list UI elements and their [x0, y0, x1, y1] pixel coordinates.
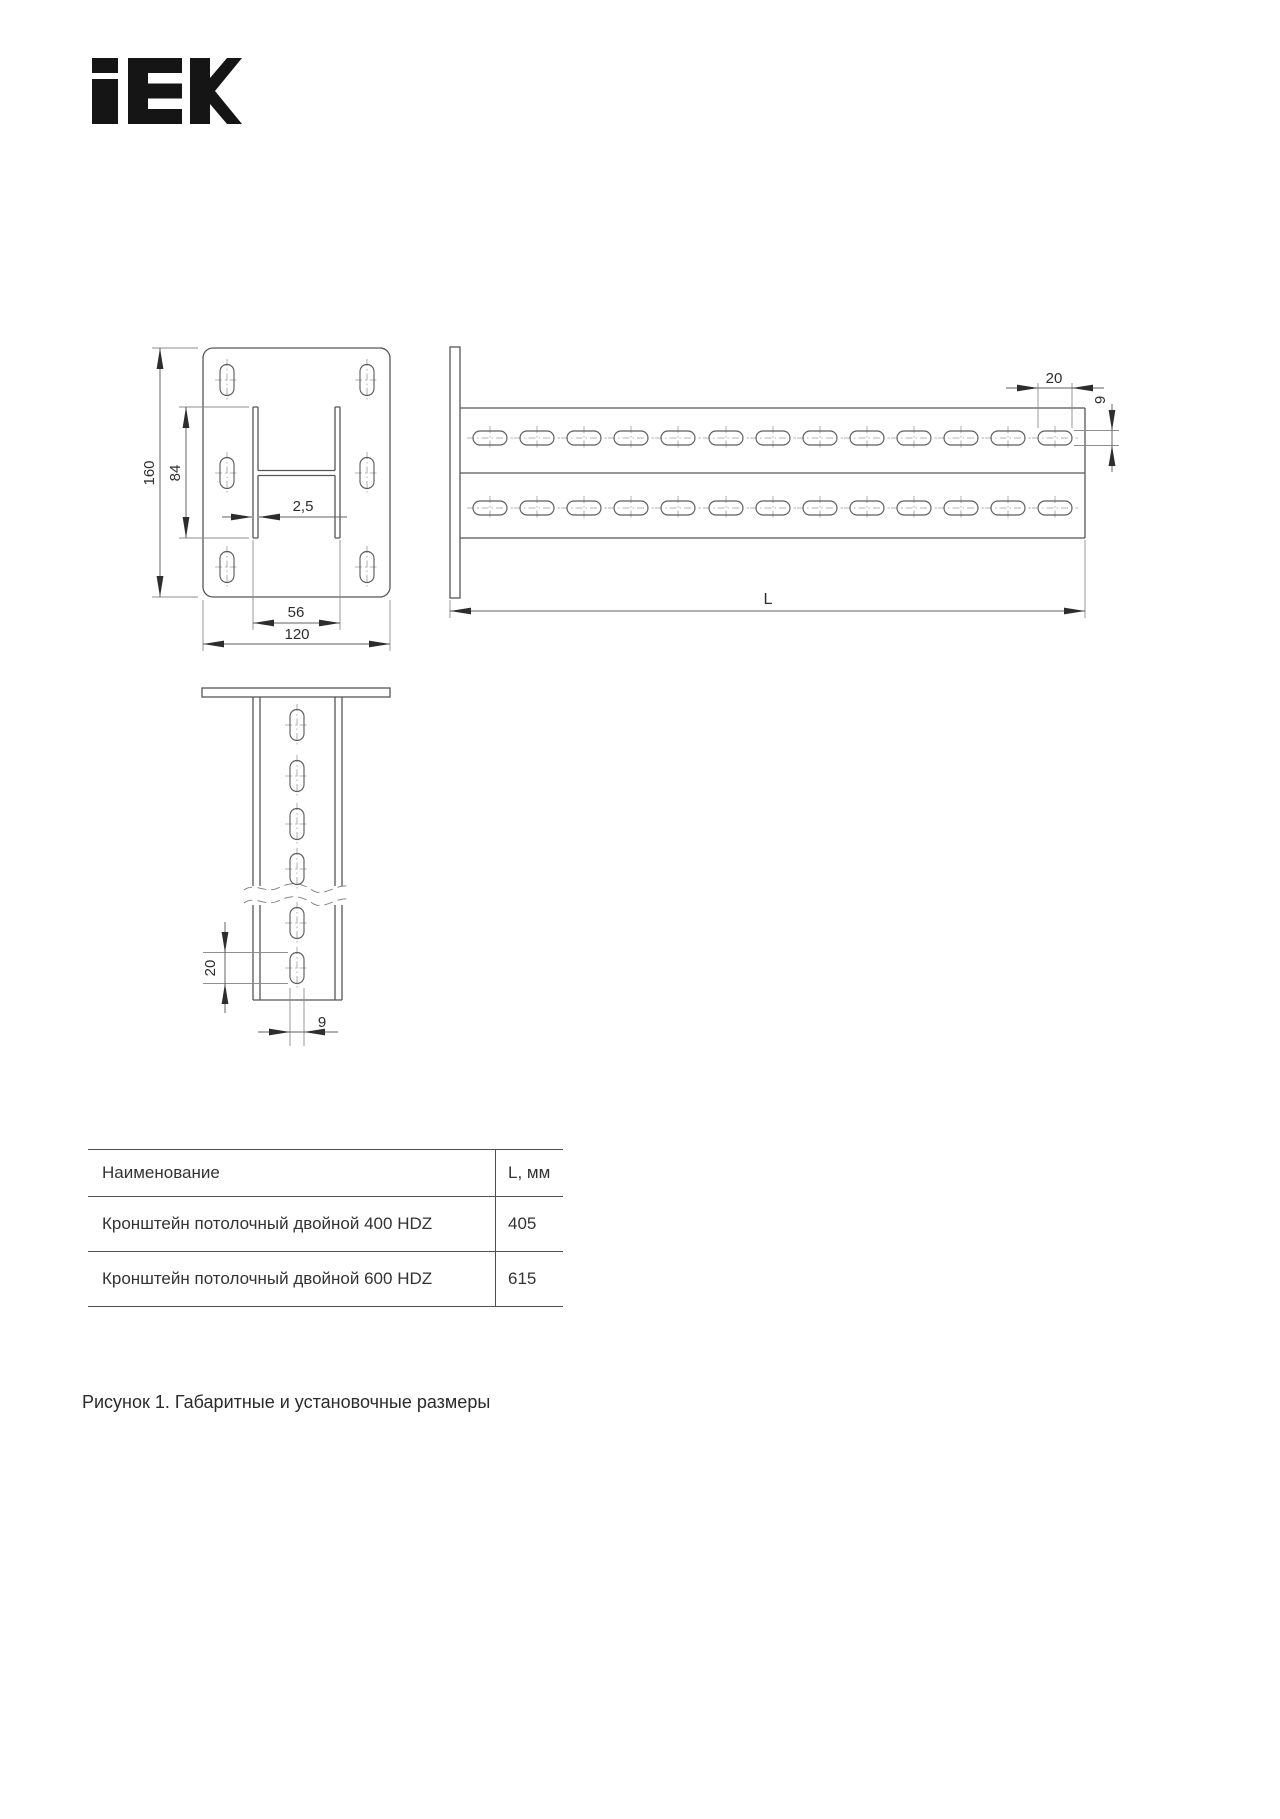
table-row: Кронштейн потолочный двойной 400 HDZ 405	[88, 1196, 563, 1251]
slot-hole	[561, 426, 607, 450]
slot-hole	[285, 947, 309, 989]
slot-hole	[797, 426, 843, 450]
slot-hole	[285, 902, 309, 944]
dim-length-L: L	[764, 591, 773, 608]
bracket-body-outline	[460, 408, 1085, 538]
side-view-slots-row2	[467, 496, 1078, 520]
dim-slot-width: 9	[318, 1014, 326, 1031]
slot-hole	[215, 452, 239, 494]
table-cell-length: 615	[495, 1252, 563, 1306]
table-header-row: Наименование L, мм	[88, 1149, 563, 1196]
slot-hole	[938, 496, 984, 520]
slot-hole	[467, 496, 513, 520]
table-row: Кронштейн потолочный двойной 600 HDZ 615	[88, 1251, 563, 1306]
dim-slot-length: 20	[202, 960, 219, 977]
slot-hole	[891, 496, 937, 520]
slot-hole	[215, 359, 239, 401]
h-profile-outline	[253, 407, 340, 538]
dim-profile-height: 84	[167, 465, 184, 482]
column-view-slots	[285, 704, 309, 989]
top-plate-outline	[202, 688, 390, 697]
slot-hole	[355, 452, 379, 494]
side-dimension-arrows	[450, 385, 1115, 615]
slot-hole	[285, 848, 309, 890]
spec-table: Наименование L, мм Кронштейн потолочный …	[88, 1149, 563, 1307]
slot-hole	[1032, 496, 1078, 520]
side-dimension-lines	[450, 388, 1112, 611]
table-cell-name: Кронштейн потолочный двойной 400 HDZ	[88, 1197, 495, 1251]
slot-hole	[467, 426, 513, 450]
dim-profile-width: 56	[288, 604, 305, 621]
side-view: 20 9 L	[450, 347, 1119, 618]
front-dimension-arrows	[157, 348, 390, 647]
front-dimension-lines	[160, 348, 390, 644]
slot-hole	[891, 426, 937, 450]
slot-hole	[514, 426, 560, 450]
datasheet-page: IEK	[0, 0, 1280, 1819]
column-view: 20 9	[202, 688, 390, 1046]
dim-plate-width: 120	[284, 626, 309, 643]
slot-hole	[985, 496, 1031, 520]
dim-plate-height: 160	[141, 460, 158, 485]
slot-hole	[608, 426, 654, 450]
slot-hole	[655, 496, 701, 520]
slot-hole	[844, 426, 890, 450]
slot-hole	[285, 803, 309, 845]
table-header-name: Наименование	[88, 1150, 495, 1196]
slot-hole	[285, 755, 309, 797]
slot-hole	[938, 426, 984, 450]
slot-hole	[750, 426, 796, 450]
slot-hole	[1032, 426, 1078, 450]
slot-hole	[703, 426, 749, 450]
column-outline	[253, 697, 342, 1000]
slot-hole	[844, 496, 890, 520]
dim-wall-thickness: 2,5	[293, 498, 314, 515]
slot-hole	[561, 496, 607, 520]
slot-hole	[703, 496, 749, 520]
slot-hole	[285, 704, 309, 746]
table-header-length: L, мм	[495, 1150, 563, 1196]
slot-hole	[985, 426, 1031, 450]
side-view-slots-row1	[467, 426, 1078, 450]
technical-drawing: 160 84 2,5 56 120	[0, 0, 1280, 1100]
figure-caption: Рисунок 1. Габаритные и установочные раз…	[82, 1392, 490, 1413]
slot-hole	[655, 426, 701, 450]
dim-slot-length: 20	[1046, 370, 1063, 387]
front-view: 160 84 2,5 56 120	[141, 348, 390, 651]
slot-hole	[514, 496, 560, 520]
dim-slot-width: 9	[1092, 396, 1109, 404]
front-view-slots	[215, 359, 379, 588]
slot-hole	[355, 359, 379, 401]
front-extension-lines	[152, 348, 390, 651]
mounting-plate-outline	[203, 348, 390, 597]
table-cell-length: 405	[495, 1197, 563, 1251]
slot-hole	[215, 546, 239, 588]
flange-outline	[450, 347, 460, 598]
slot-hole	[797, 496, 843, 520]
table-cell-name: Кронштейн потолочный двойной 600 HDZ	[88, 1252, 495, 1306]
slot-hole	[750, 496, 796, 520]
slot-hole	[608, 496, 654, 520]
slot-hole	[355, 546, 379, 588]
